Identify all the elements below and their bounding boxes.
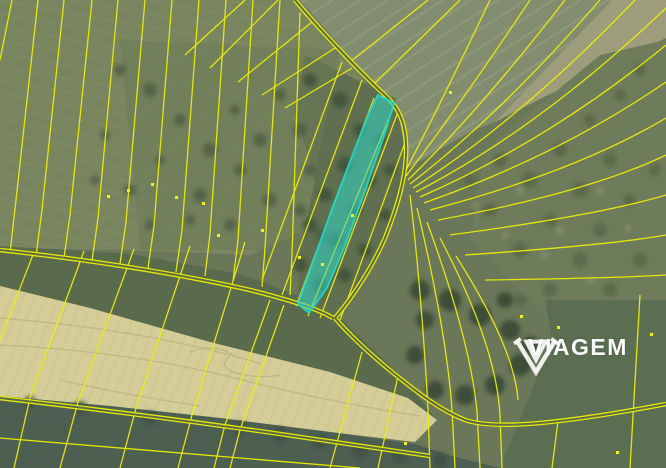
- map-canvas: [0, 0, 666, 468]
- cadastral-map: VIAGEM: [0, 0, 666, 468]
